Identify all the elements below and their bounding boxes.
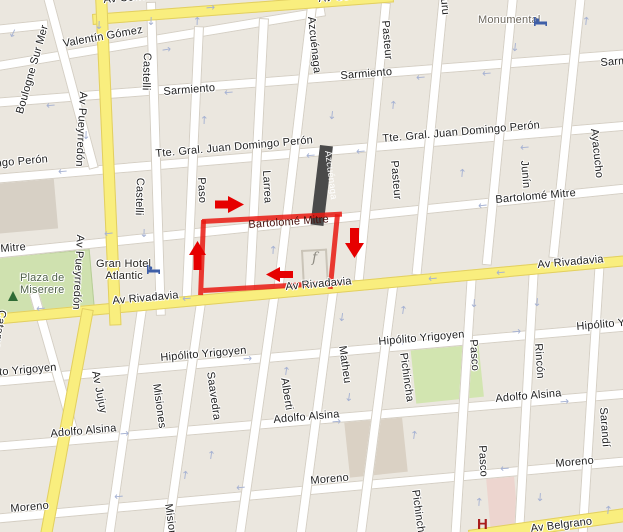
route-arrow-east-icon bbox=[215, 196, 245, 214]
oneway-arrow-icon bbox=[520, 142, 530, 153]
street-label-misiones: Misiones bbox=[162, 503, 180, 532]
route-arrow-west-icon bbox=[266, 267, 293, 282]
street-label-junin: Junín bbox=[518, 160, 532, 189]
street-label-castelli: Castelli bbox=[140, 53, 153, 91]
street-label-sarandi: Sarandí bbox=[597, 407, 612, 448]
oneway-arrow-icon bbox=[398, 305, 409, 316]
oneway-arrow-icon bbox=[145, 16, 155, 26]
oneway-arrow-icon bbox=[224, 87, 234, 98]
oneway-arrow-icon bbox=[93, 20, 103, 30]
park-label-line2: Miserere bbox=[20, 284, 64, 296]
street-label-catamarca: Catamarca bbox=[0, 309, 8, 366]
park-label-line1: Plaza de bbox=[20, 272, 64, 284]
street-label-pichincha: Pichincha bbox=[409, 489, 428, 532]
street-label-castelli: Castelli bbox=[133, 178, 146, 216]
street-label-uriburu: uru bbox=[438, 0, 451, 15]
oneway-arrow-icon bbox=[138, 228, 148, 238]
street-label-pasteur: Pasteur bbox=[379, 20, 394, 60]
oneway-arrow-icon bbox=[409, 430, 420, 441]
street-label-pasco: Pasco bbox=[476, 445, 490, 477]
oneway-arrow-icon bbox=[114, 491, 124, 502]
oneway-arrow-icon bbox=[534, 492, 545, 502]
oneway-arrow-icon bbox=[509, 42, 520, 52]
oneway-arrow-icon bbox=[199, 115, 209, 125]
oneway-arrow-icon bbox=[326, 110, 337, 120]
oneway-arrow-icon bbox=[36, 303, 46, 314]
street-label-saavedra: Saavedra bbox=[204, 371, 223, 421]
street-label-pasteur: Pasteur bbox=[388, 160, 403, 200]
street-label-rincon: Rincón bbox=[532, 343, 546, 379]
hotel-label-line1: Gran Hotel bbox=[96, 258, 143, 270]
oneway-arrow-icon bbox=[603, 505, 614, 515]
oneway-arrow-icon bbox=[336, 312, 347, 323]
street-pichincha bbox=[356, 279, 399, 532]
oneway-arrow-icon bbox=[306, 150, 316, 161]
oneway-arrow-icon bbox=[58, 166, 68, 177]
oneway-arrow-icon bbox=[388, 100, 399, 110]
oneway-arrow-icon bbox=[512, 327, 522, 338]
route-arrow-north-icon bbox=[189, 241, 206, 270]
hospital-block bbox=[486, 475, 518, 527]
street-label-mitre: Bartolomé Mitre bbox=[495, 187, 576, 206]
street-label-misiones: Misiones bbox=[150, 383, 168, 429]
oneway-arrow-icon bbox=[482, 68, 492, 79]
street-label-sarmiento: Sarmiento bbox=[163, 82, 216, 98]
building-block-west bbox=[0, 179, 58, 234]
oneway-arrow-icon bbox=[281, 366, 292, 377]
oneway-arrow-icon bbox=[416, 72, 426, 83]
oneway-arrow-icon bbox=[161, 44, 172, 55]
oneway-arrow-icon bbox=[236, 482, 246, 493]
oneway-arrow-icon bbox=[457, 168, 468, 178]
oneway-arrow-icon bbox=[104, 228, 114, 239]
oneway-arrow-icon bbox=[268, 245, 278, 255]
street-label-paso: Paso bbox=[195, 177, 208, 203]
hotel-label-line2: Atlantic bbox=[96, 270, 143, 282]
street-boulogne-sur-mer bbox=[42, 0, 99, 170]
oneway-arrow-icon bbox=[478, 200, 488, 211]
oneway-arrow-icon bbox=[581, 16, 592, 26]
oneway-arrow-icon bbox=[180, 470, 191, 481]
poi-f-icon: f bbox=[312, 250, 317, 266]
street-label-pasco: Pasco bbox=[467, 339, 481, 371]
oneway-arrow-icon bbox=[206, 450, 217, 461]
oneway-arrow-icon bbox=[468, 298, 479, 308]
tree-icon bbox=[8, 274, 18, 292]
hotel-bed-icon bbox=[147, 265, 160, 275]
route-arrow-south-icon bbox=[345, 228, 364, 258]
oneway-arrow-icon bbox=[46, 100, 56, 111]
oneway-arrow-icon bbox=[474, 497, 485, 507]
street-label-corrientes: Av Corrientes bbox=[103, 0, 173, 6]
monumental-label: Monumental bbox=[478, 14, 541, 26]
oneway-arrow-icon bbox=[428, 273, 438, 284]
oneway-arrow-icon bbox=[356, 146, 366, 157]
oneway-arrow-icon bbox=[500, 463, 510, 474]
oneway-arrow-icon bbox=[182, 293, 192, 304]
oneway-arrow-icon bbox=[192, 16, 202, 26]
hotel-bed-icon bbox=[534, 17, 547, 27]
street-label-larrea: Larrea bbox=[260, 170, 274, 204]
street-label-sarmiento: Sarmiento bbox=[340, 66, 393, 82]
oneway-arrow-icon bbox=[496, 267, 506, 278]
oneway-arrow-icon bbox=[206, 3, 216, 14]
map-canvas[interactable]: Av Corrientes Av Corrientes Valentín Góm… bbox=[0, 0, 623, 532]
street-label-alberti: Alberti bbox=[278, 377, 295, 411]
street-label-ayacucho: Ayacucho bbox=[588, 128, 605, 179]
oneway-arrow-icon bbox=[531, 297, 542, 307]
hospital-marker[interactable]: H bbox=[477, 516, 488, 532]
oneway-arrow-icon bbox=[343, 392, 354, 403]
street-misiones bbox=[104, 301, 148, 532]
oneway-arrow-icon bbox=[120, 429, 130, 440]
